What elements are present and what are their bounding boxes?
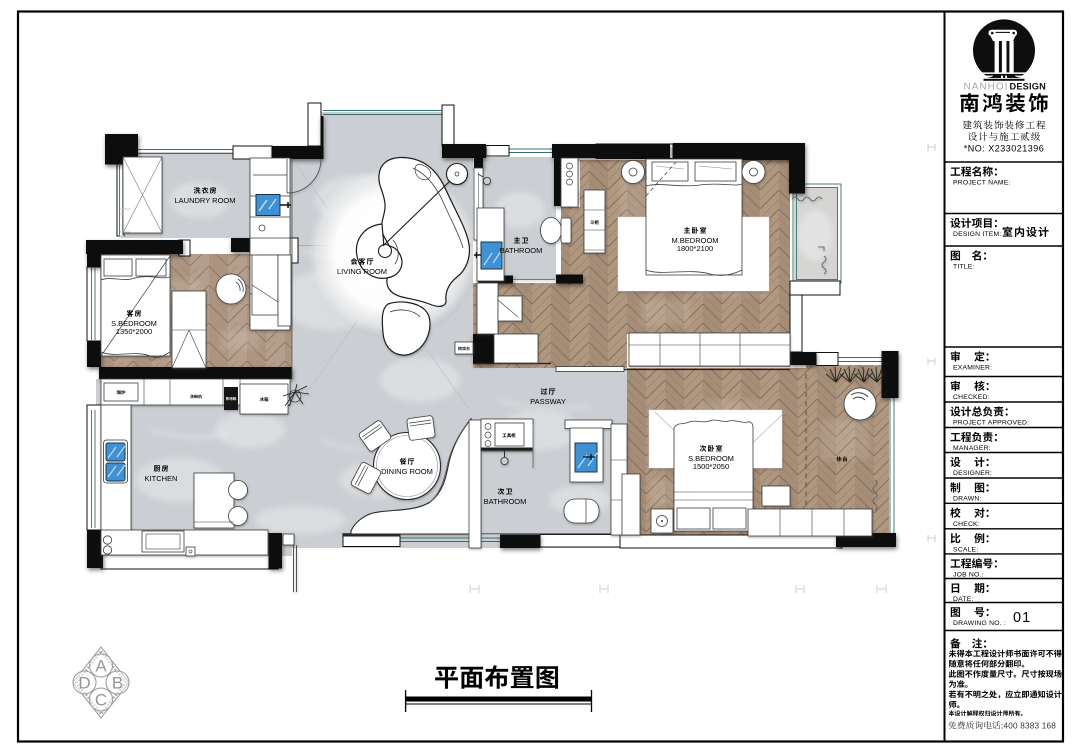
svg-text:B: B [112,674,123,693]
svg-text:DESIGN ITEM:: DESIGN ITEM: [953,231,1001,238]
svg-text:PASSWAY: PASSWAY [530,397,566,406]
svg-text:DRAWN:: DRAWN: [953,496,982,503]
svg-text:CHECKED:: CHECKED: [953,394,990,401]
svg-text:KITCHEN: KITCHEN [145,474,178,483]
svg-text:DESIGN: DESIGN [1010,82,1047,92]
svg-text:PROJECT NAME:: PROJECT NAME: [953,180,1011,187]
svg-text:DATE:: DATE: [953,596,974,603]
svg-text:BATHROOM: BATHROOM [484,497,527,506]
svg-text:CHECK:: CHECK: [953,521,980,528]
svg-text:NANHOI: NANHOI [964,82,1009,93]
svg-text:LIVING ROOM: LIVING ROOM [337,267,387,276]
svg-text:PROJECT APPROVED:: PROJECT APPROVED: [953,420,1029,427]
svg-text:BATHROOM: BATHROOM [500,246,543,255]
svg-text:1500*2050: 1500*2050 [693,462,729,471]
svg-text:LAUNDRY ROOM: LAUNDRY ROOM [175,196,236,205]
svg-text:*NO: X233021396: *NO: X233021396 [964,144,1045,154]
svg-text:A: A [95,657,107,676]
svg-text:DESIGNER:: DESIGNER: [953,470,992,477]
svg-text:MANAGER:: MANAGER: [953,445,991,452]
svg-text:SCALE:: SCALE: [953,546,978,553]
svg-text:D: D [78,674,90,693]
svg-text:1350*2000: 1350*2000 [116,327,152,336]
svg-text:TITLE:: TITLE: [953,264,975,271]
svg-text:400 8383 168: 400 8383 168 [1004,722,1057,731]
svg-text:JOB NO.:: JOB NO.: [953,571,984,578]
svg-text:C: C [95,691,107,710]
svg-text:1800*2100: 1800*2100 [677,244,713,253]
svg-text:EXAMINER:: EXAMINER: [953,365,992,372]
svg-text:DINING ROOM: DINING ROOM [381,467,433,476]
svg-text:DRAWING NO. :: DRAWING NO. : [953,620,1006,627]
svg-text:01: 01 [1013,610,1031,626]
